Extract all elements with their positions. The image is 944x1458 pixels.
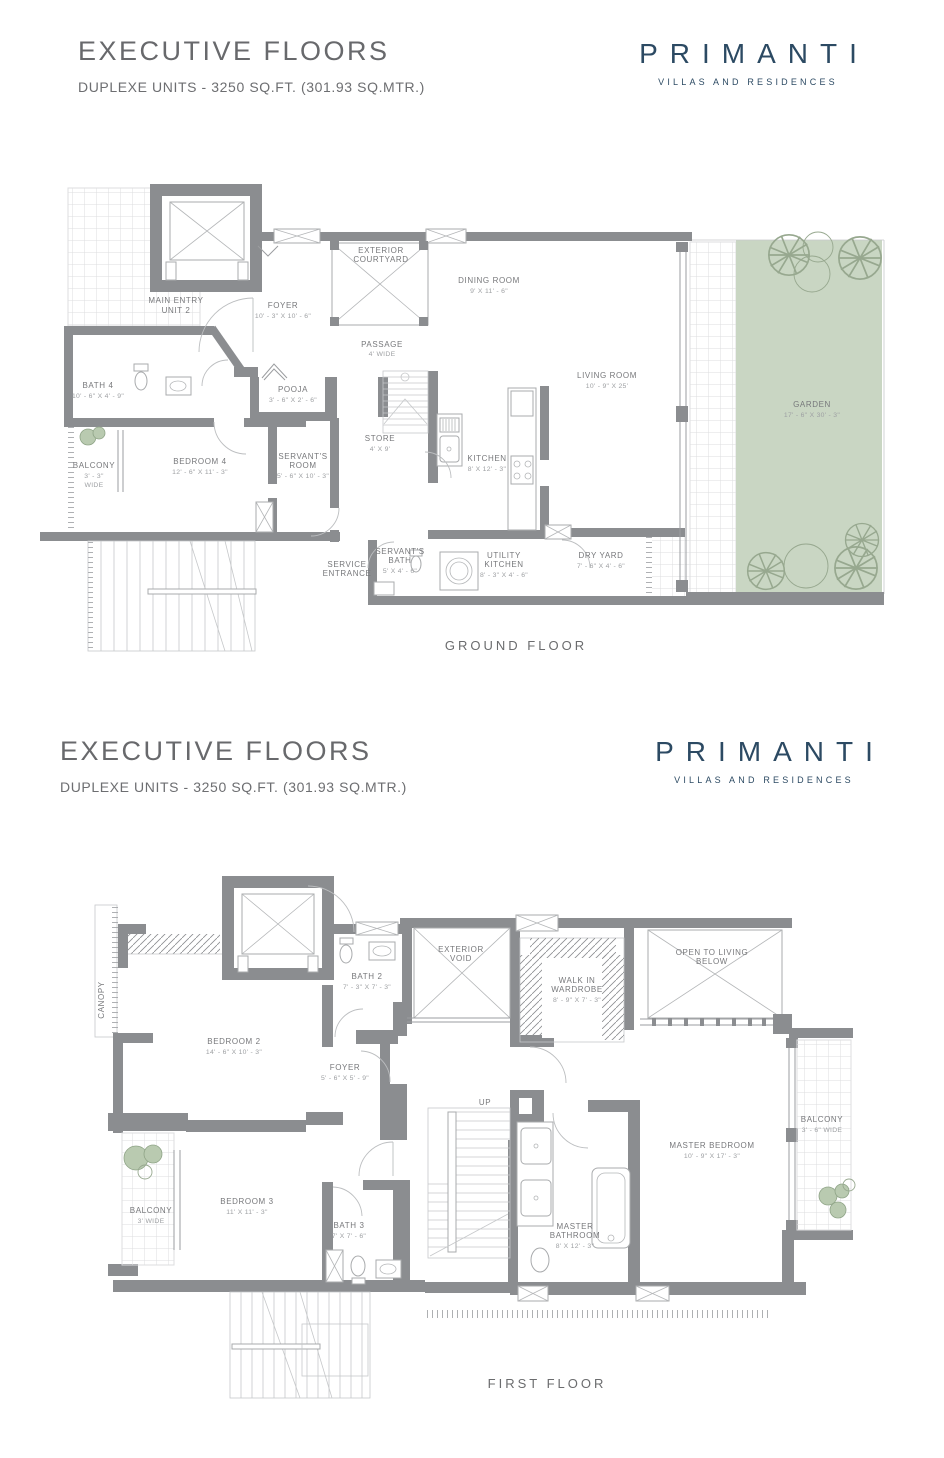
room-label: BEDROOM 4 [173,457,226,466]
room-dims: 8' X 12' - 3" [468,466,507,473]
internal-stairs [383,371,428,433]
room-label: KITCHEN [484,560,523,569]
room-label: UNIT 2 [162,306,191,315]
room-dims: 5' - 6" X 10' - 3" [277,473,329,480]
tile-strip-right [690,242,736,594]
page-title: EXECUTIVE FLOORS [60,736,407,767]
balcony-right [786,1038,855,1232]
room-dims: 8' - 9" X 7' - 3" [553,997,601,1004]
room-dims: 3' - 3" [84,473,104,480]
room-label: KITCHEN [467,454,506,463]
room-label: UTILITY [487,551,521,560]
room-label: BEDROOM 2 [207,1037,260,1046]
ground-floor-caption: GROUND FLOOR [366,638,666,653]
room-label: BATH [388,556,411,565]
elevator-shaft [222,876,334,980]
room-dims: 5' - 6" X 5' - 9" [321,1075,369,1082]
room-label: ENTRANCE [323,569,372,578]
room-dims: 12' - 6" X 11' - 3" [172,469,228,476]
room-dims: 4' X 9' [370,446,391,453]
room-label: ROOM [289,461,316,470]
first-floor-caption: FIRST FLOOR [397,1376,697,1391]
room-label: MAIN ENTRY [148,296,203,305]
balcony-left-ff [122,1133,180,1265]
room-label: FOYER [268,301,299,310]
room-dims: 3' - 6" X 2' - 6" [269,397,317,404]
room-label: WALK IN [559,976,596,985]
room-dims: 10' - 9" X 17' - 3" [684,1153,740,1160]
elevator-shaft [150,184,262,292]
external-stairs [88,541,256,651]
brand-name: PRIMANTI [608,38,888,70]
room-label: MASTER BEDROOM [669,1141,754,1150]
room-label: COURTYARD [353,255,408,264]
room-dims: 5' X 4' - 6" [383,568,418,575]
room-dims: 17' - 6" X 30' - 3" [784,412,840,419]
room-label: BELOW [696,957,728,966]
room-label: BEDROOM 3 [220,1197,273,1206]
pooja-doors [262,364,287,380]
room-dims: 8' - 3" X 4' - 6" [480,572,528,579]
room-label: BATH 2 [351,972,382,981]
room-label: SERVICE [327,560,366,569]
room-dims: 11' X 11' - 3" [226,1209,268,1216]
room-label: BALCONY [801,1115,843,1124]
room-label: DRY YARD [578,551,623,560]
brand-logo: PRIMANTI VILLAS AND RESIDENCES [624,736,904,785]
room-label: STORE [365,434,395,443]
room-label: POOJA [278,385,308,394]
room-dims: 3' WIDE [138,1218,165,1225]
first-floor-plan: CANOPY BEDROOM 2 14' - 6" X 10' - 3" BAT… [85,860,865,1408]
room-label: DINING ROOM [458,276,520,285]
brand-tagline: VILLAS AND RESIDENCES [608,77,888,87]
room-dims: 4' WIDE [369,351,396,358]
page-subtitle: DUPLEXE UNITS - 3250 SQ.FT. (301.93 SQ.M… [60,779,407,795]
room-label: PASSAGE [361,340,403,349]
header-top: EXECUTIVE FLOORS DUPLEXE UNITS - 3250 SQ… [78,36,425,95]
room-label: CANOPY [97,981,106,1018]
room-label: FOYER [330,1063,361,1072]
brand-name: PRIMANTI [624,736,904,768]
room-dims: 10' - 6" X 4' - 9" [72,393,124,400]
header-bottom: EXECUTIVE FLOORS DUPLEXE UNITS - 3250 SQ… [60,736,407,795]
page-subtitle: DUPLEXE UNITS - 3250 SQ.FT. (301.93 SQ.M… [78,79,425,95]
bath4-fixtures [134,364,191,395]
room-label: BATH 3 [333,1221,364,1230]
room-dims: 14' - 6" X 10' - 3" [206,1049,262,1056]
room-label: MASTER [557,1222,594,1231]
room-dims: 3' - 6" WIDE [802,1127,843,1134]
canopy [95,905,222,1037]
brand-logo: PRIMANTI VILLAS AND RESIDENCES [608,38,888,87]
room-label: EXTERIOR [438,945,484,954]
exterior-void [407,928,510,1022]
room-label: BATHROOM [550,1231,600,1240]
ground-floor-plan: MAIN ENTRY UNIT 2 FOYER 10' - 3" X 10' -… [40,180,900,660]
room-label: BATH 4 [82,381,113,390]
room-label: WARDROBE [551,985,603,994]
bath3-fixtures [326,1250,401,1284]
room-dims: WIDE [85,482,104,489]
room-dims: 7' X 7' - 6" [332,1233,367,1240]
open-to-living [640,930,792,1034]
room-label: BALCONY [130,1206,172,1215]
room-label: OPEN TO LIVING [676,948,749,957]
shaft-box [256,502,273,532]
room-label: UP [479,1098,491,1107]
room-dims: 7' - 6" X 4' - 6" [577,563,625,570]
room-dims: 9' X 11' - 6" [470,288,508,295]
room-label: SERVANT'S [278,452,327,461]
room-label: VOID [450,954,472,963]
brand-tagline: VILLAS AND RESIDENCES [624,775,904,785]
room-label: SERVANT'S [375,547,424,556]
room-dims: 10' - 3" X 10' - 6" [255,313,311,320]
room-dims: 10' - 9" X 25' [586,383,628,390]
room-label: EXTERIOR [358,246,404,255]
room-label: BALCONY [73,461,115,470]
page-title: EXECUTIVE FLOORS [78,36,425,67]
room-dims: 7' - 3" X 7' - 3" [343,984,391,991]
room-label: LIVING ROOM [577,371,637,380]
bath2-fixtures [340,938,395,963]
up-stairs [428,1108,510,1258]
room-dims: 8' X 12' - 3" [556,1243,595,1250]
room-label: GARDEN [793,400,831,409]
